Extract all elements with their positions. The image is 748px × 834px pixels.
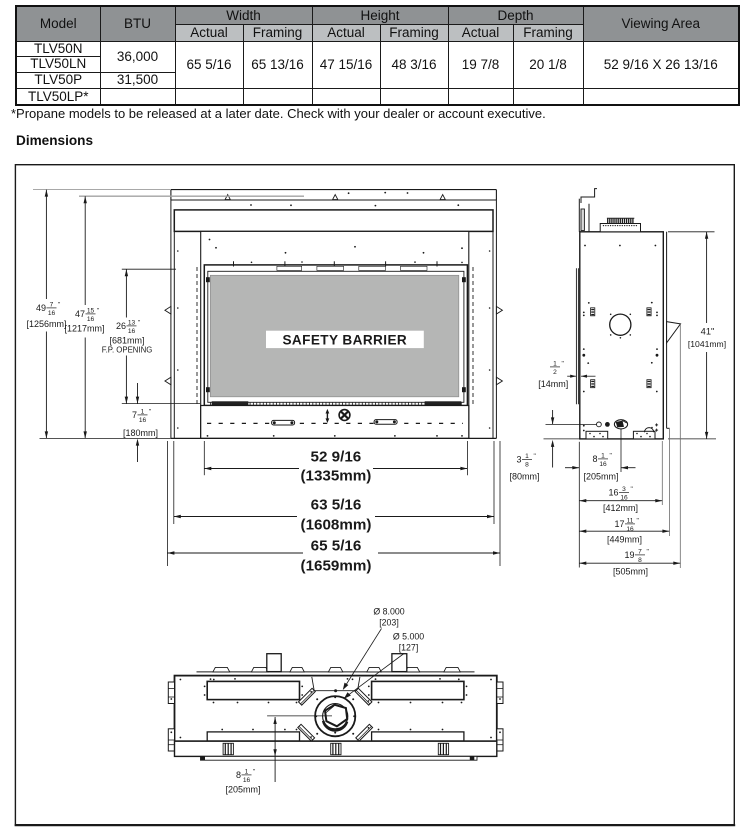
svg-text:": " bbox=[637, 518, 640, 525]
svg-text:63 5/16: 63 5/16 bbox=[311, 496, 362, 513]
svg-text:26: 26 bbox=[116, 321, 126, 331]
svg-text:19: 19 bbox=[624, 550, 634, 560]
svg-text:SAFETY BARRIER: SAFETY BARRIER bbox=[282, 332, 407, 347]
svg-text:7: 7 bbox=[50, 301, 54, 308]
svg-text:": " bbox=[149, 409, 152, 416]
svg-text:": " bbox=[610, 453, 613, 460]
svg-text:16: 16 bbox=[128, 328, 136, 335]
svg-text:15: 15 bbox=[87, 307, 95, 314]
svg-text:F.P. OPENING: F.P. OPENING bbox=[102, 346, 153, 355]
svg-text:16: 16 bbox=[626, 526, 634, 533]
svg-text:[1041mm]: [1041mm] bbox=[688, 339, 726, 349]
svg-text:7: 7 bbox=[638, 548, 642, 555]
svg-text:7: 7 bbox=[132, 410, 137, 420]
svg-text:Ø 5.000: Ø 5.000 bbox=[393, 632, 424, 642]
svg-text:(1659mm): (1659mm) bbox=[301, 558, 372, 575]
svg-text:52 9/16: 52 9/16 bbox=[311, 449, 362, 466]
svg-text:[505mm]: [505mm] bbox=[613, 567, 648, 577]
svg-text:2: 2 bbox=[553, 369, 557, 376]
svg-text:1: 1 bbox=[525, 453, 529, 460]
svg-text:16: 16 bbox=[608, 487, 618, 497]
svg-text:1: 1 bbox=[141, 408, 145, 415]
svg-text:[1217mm]: [1217mm] bbox=[64, 324, 104, 334]
svg-text:1: 1 bbox=[553, 360, 557, 367]
svg-text:16: 16 bbox=[87, 316, 95, 323]
svg-text:16: 16 bbox=[620, 495, 628, 502]
svg-text:[1256mm]: [1256mm] bbox=[26, 319, 66, 329]
svg-text:[205mm]: [205mm] bbox=[583, 472, 618, 482]
svg-text:[180mm]: [180mm] bbox=[123, 428, 158, 438]
svg-text:[127]: [127] bbox=[399, 643, 419, 653]
svg-text:17: 17 bbox=[614, 519, 624, 529]
svg-text:": " bbox=[253, 769, 256, 776]
svg-text:[449mm]: [449mm] bbox=[607, 535, 642, 545]
svg-text:[80mm]: [80mm] bbox=[509, 472, 539, 482]
svg-text:3: 3 bbox=[622, 486, 626, 493]
svg-text:8: 8 bbox=[638, 557, 642, 564]
svg-text:8: 8 bbox=[236, 770, 241, 780]
svg-text:49: 49 bbox=[36, 303, 46, 313]
svg-text:": " bbox=[534, 453, 537, 460]
svg-text:Ø 8.000: Ø 8.000 bbox=[373, 607, 404, 617]
svg-text:16: 16 bbox=[599, 461, 607, 468]
svg-text:47: 47 bbox=[75, 309, 85, 319]
svg-text:(1608mm): (1608mm) bbox=[301, 516, 372, 533]
svg-text:16: 16 bbox=[139, 417, 147, 424]
svg-text:1: 1 bbox=[245, 768, 249, 775]
svg-text:": " bbox=[631, 486, 634, 493]
svg-text:": " bbox=[647, 549, 650, 556]
svg-text:[203]: [203] bbox=[379, 618, 399, 628]
svg-text:16: 16 bbox=[48, 310, 56, 317]
svg-text:[14mm]: [14mm] bbox=[538, 379, 568, 389]
svg-text:13: 13 bbox=[128, 319, 136, 326]
svg-text:8: 8 bbox=[592, 454, 597, 464]
svg-text:16: 16 bbox=[243, 777, 251, 784]
svg-text:65 5/16: 65 5/16 bbox=[311, 538, 362, 555]
svg-text:41": 41" bbox=[701, 327, 715, 337]
svg-text:[205mm]: [205mm] bbox=[225, 785, 260, 795]
svg-text:": " bbox=[562, 361, 565, 368]
svg-text:(1335mm): (1335mm) bbox=[300, 467, 371, 484]
svg-text:11: 11 bbox=[627, 517, 634, 524]
svg-text:[681mm]: [681mm] bbox=[109, 336, 144, 346]
svg-text:8: 8 bbox=[525, 462, 529, 469]
svg-text:3: 3 bbox=[516, 454, 521, 464]
svg-text:[412mm]: [412mm] bbox=[603, 503, 638, 513]
svg-text:1: 1 bbox=[601, 452, 605, 459]
